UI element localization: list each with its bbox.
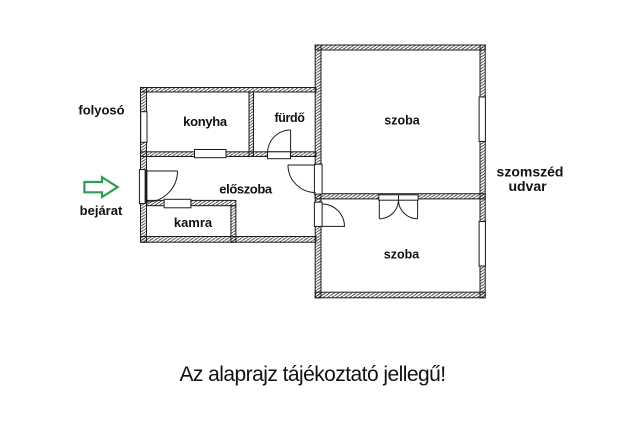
svg-text:fürdő: fürdő [275,111,306,125]
svg-text:konyha: konyha [183,114,228,129]
svg-text:előszoba: előszoba [219,182,273,197]
svg-text:szoba: szoba [384,248,420,262]
svg-text:kamra: kamra [174,215,213,230]
svg-text:szoba: szoba [384,113,420,127]
svg-text:folyosó: folyosó [78,103,124,118]
svg-text:Az alaprajz tájékoztató jelleg: Az alaprajz tájékoztató jellegű! [179,363,445,386]
svg-text:udvar: udvar [508,178,547,194]
svg-text:bejárat: bejárat [80,203,123,218]
